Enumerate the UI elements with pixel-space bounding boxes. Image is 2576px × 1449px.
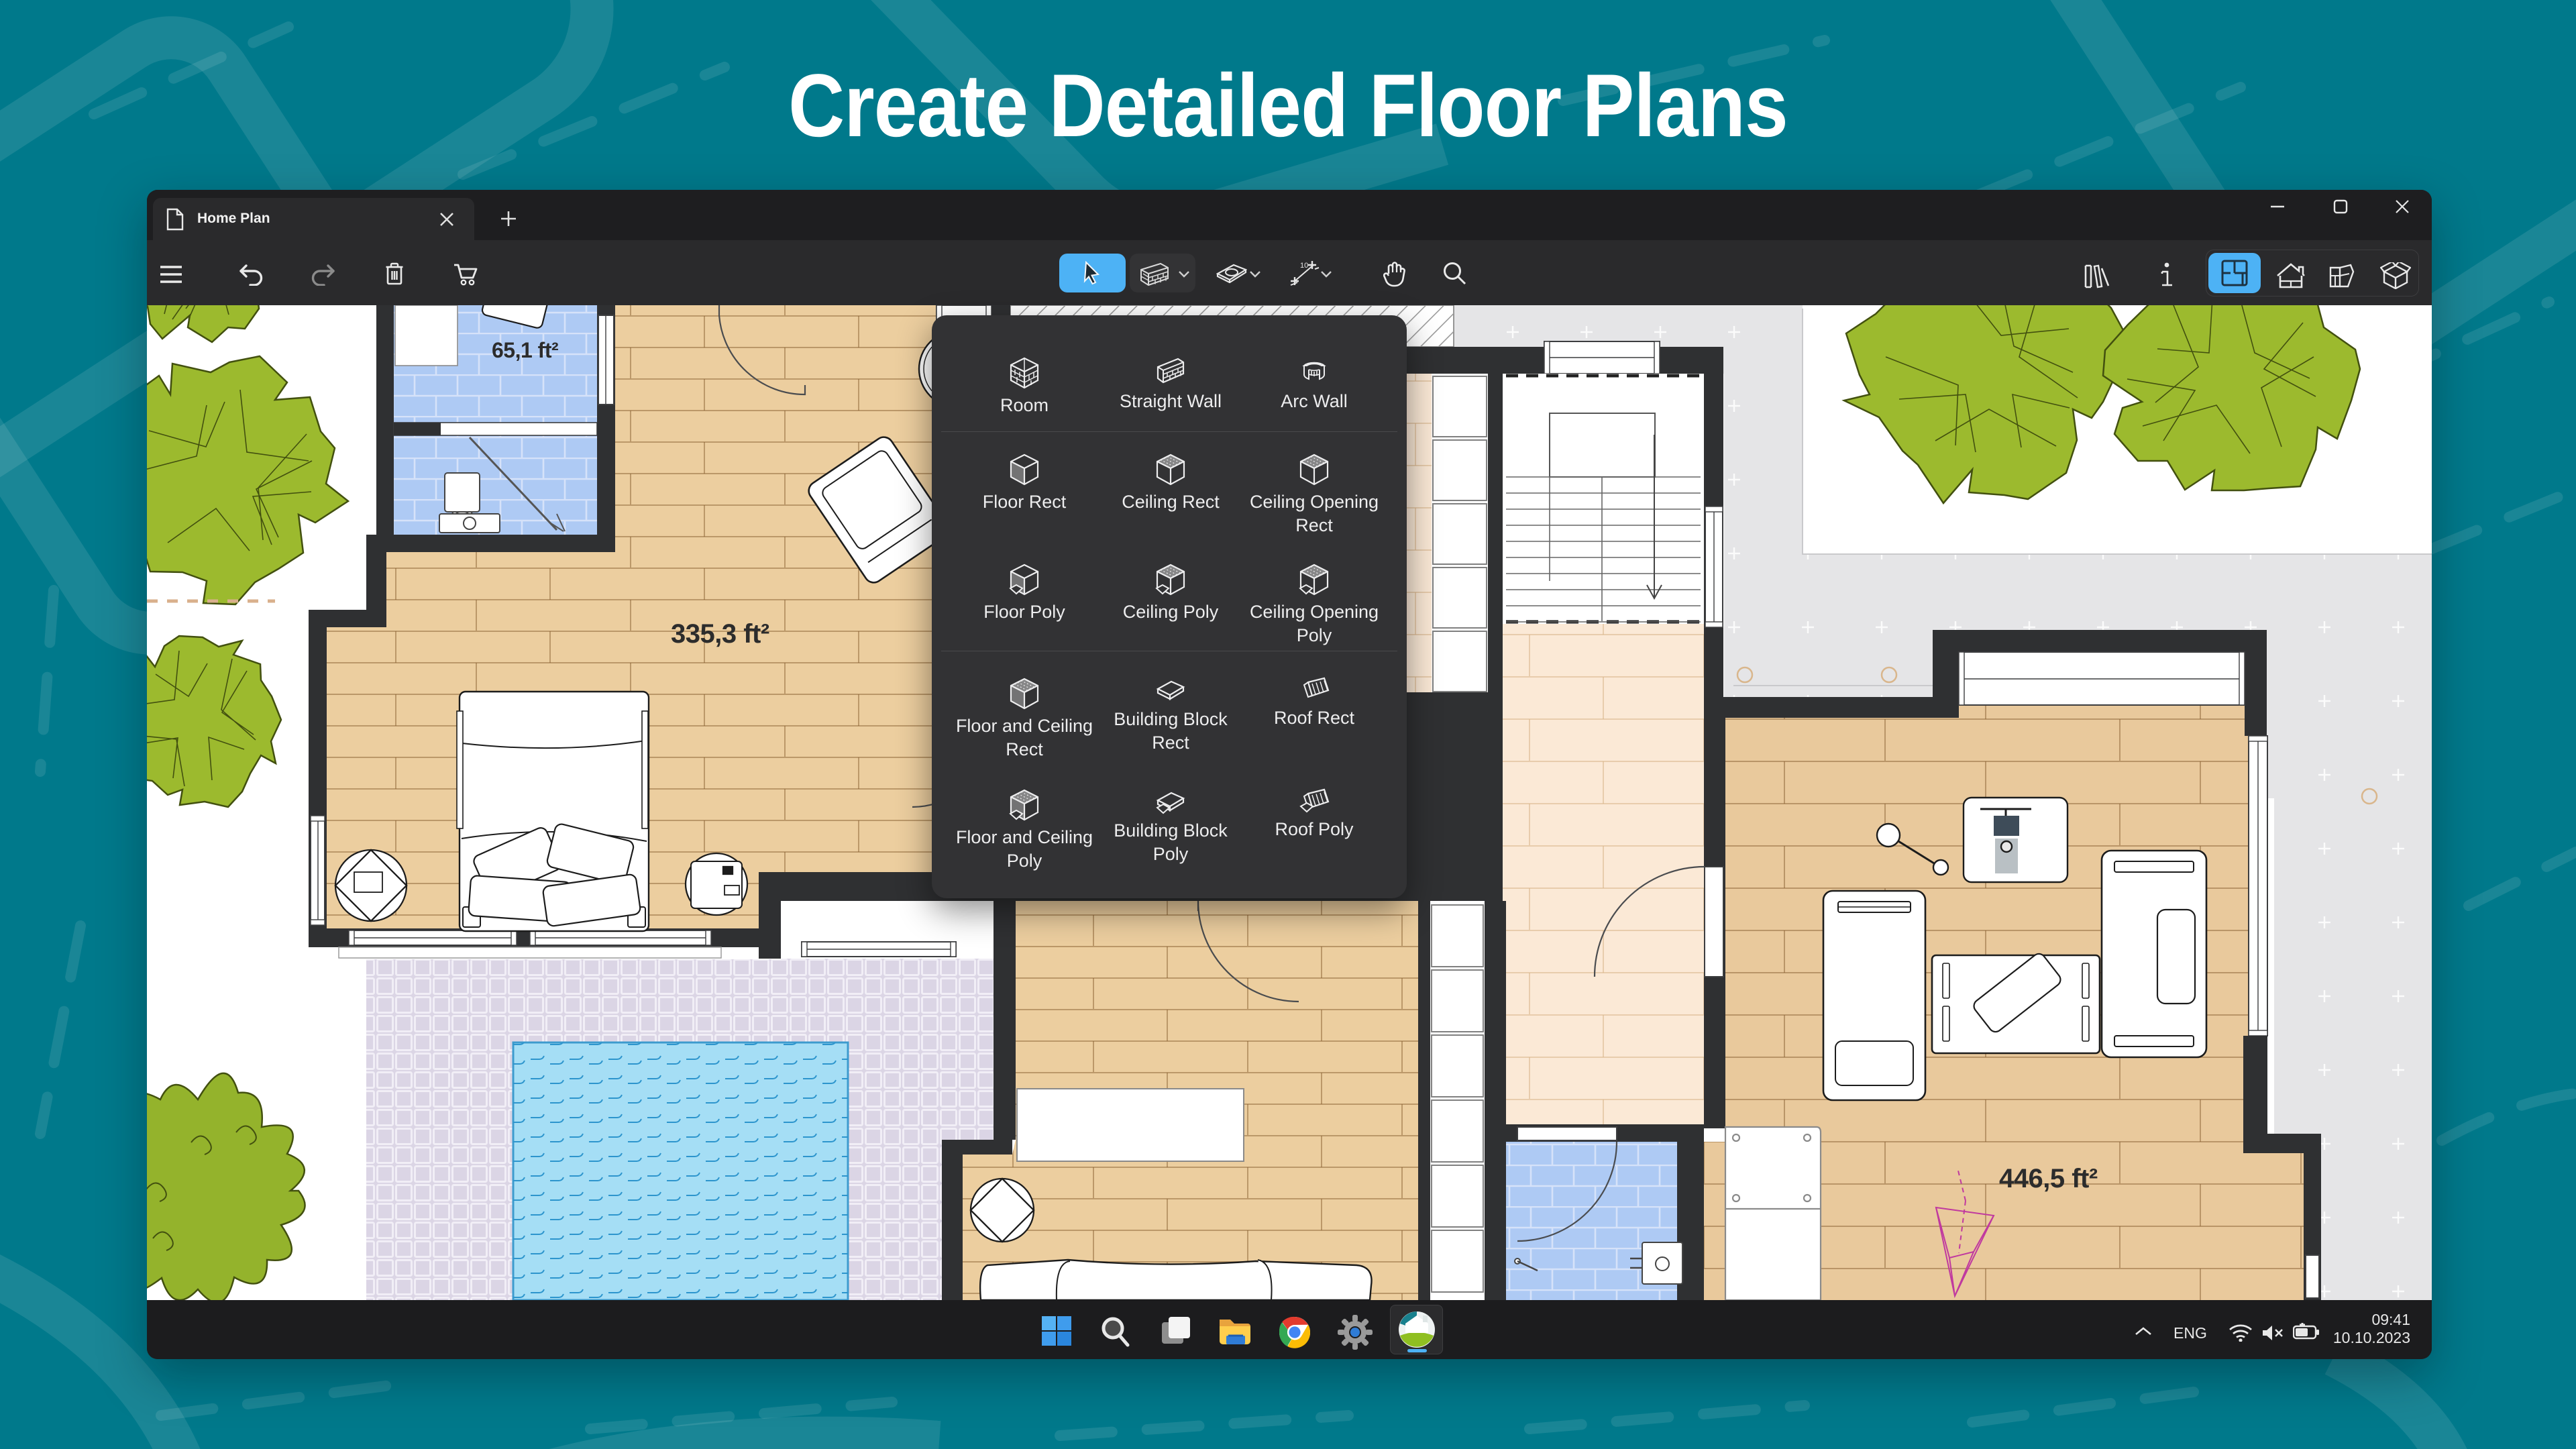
svg-text:446,5 ft²: 446,5 ft² [1999,1164,2098,1193]
svg-text:65,1 ft²: 65,1 ft² [492,338,558,362]
svg-text:10: 10 [1300,262,1308,270]
svg-text:335,3 ft²: 335,3 ft² [671,619,769,649]
